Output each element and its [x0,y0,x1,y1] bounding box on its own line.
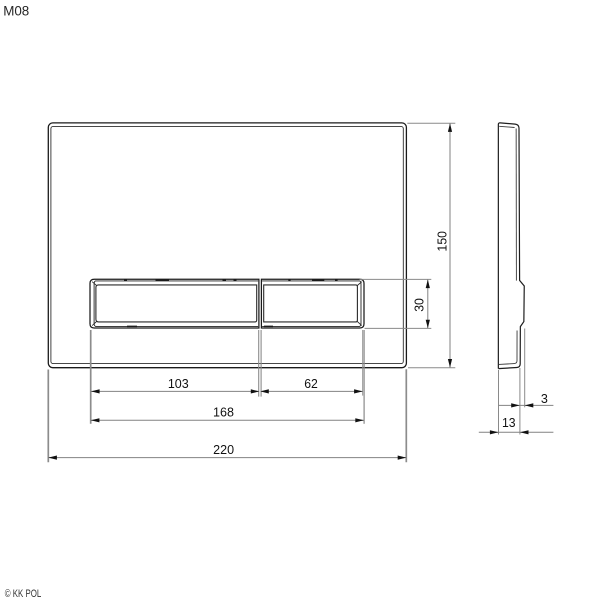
svg-text:220: 220 [213,442,234,457]
svg-text:168: 168 [213,405,234,420]
svg-text:© KK POL: © KK POL [5,588,42,600]
svg-text:30: 30 [412,298,427,312]
svg-text:13: 13 [502,415,516,430]
svg-text:62: 62 [304,376,318,391]
svg-text:M08: M08 [3,4,29,19]
svg-text:150: 150 [434,231,449,251]
svg-text:3: 3 [541,391,548,406]
svg-text:103: 103 [168,376,189,391]
